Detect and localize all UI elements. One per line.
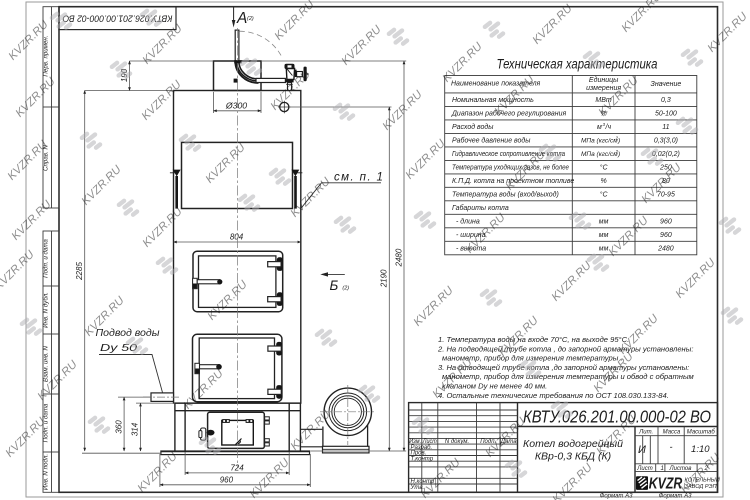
svg-text:Единицы: Единицы: [589, 76, 619, 84]
svg-text:клапаном Dу не менее 40 мм.: клапаном Dу не менее 40 мм.: [442, 382, 547, 391]
svg-text:960: 960: [220, 475, 234, 484]
svg-text:/ч: /ч: [605, 124, 612, 131]
svg-text:11: 11: [662, 124, 669, 131]
svg-text:(2): (2): [342, 286, 349, 292]
svg-text:804: 804: [230, 233, 244, 242]
svg-text:0,3: 0,3: [661, 97, 671, 104]
svg-text:Лит.: Лит.: [638, 430, 653, 436]
svg-text:KVZR.RU: KVZR.RU: [140, 78, 185, 123]
svg-text:Номинальная мощность: Номинальная мощность: [452, 97, 534, 104]
svg-text:Т.контр: Т.контр: [411, 456, 434, 462]
svg-text:KVZR.RU: KVZR.RU: [136, 450, 181, 495]
svg-text:(2): (2): [247, 16, 254, 22]
svg-text:Взам. инв. N: Взам. инв. N: [43, 345, 50, 382]
svg-text:МПа (кгс/см: МПа (кгс/см: [581, 151, 618, 158]
svg-text:KVZR.RU: KVZR.RU: [141, 22, 186, 67]
svg-text:314: 314: [131, 422, 140, 436]
svg-text:Листов: Листов: [669, 466, 692, 472]
svg-text:МПа (кгс/см: МПа (кгс/см: [581, 138, 618, 145]
svg-text:): ): [617, 151, 620, 158]
svg-text:Расход воды: Расход воды: [452, 123, 494, 131]
svg-text:Масса: Масса: [663, 430, 681, 436]
svg-text:KVZR.RU: KVZR.RU: [620, 0, 665, 35]
svg-text:%: %: [600, 178, 606, 185]
svg-text:N докум.: N докум.: [445, 439, 469, 445]
svg-text:KVZR.RU: KVZR.RU: [607, 214, 652, 259]
svg-text:2480: 2480: [394, 248, 403, 267]
svg-text:KVZR.RU: KVZR.RU: [706, 10, 750, 55]
svg-text:KVZR.RU: KVZR.RU: [0, 248, 37, 293]
svg-text:Лист: Лист: [636, 466, 652, 472]
svg-text:Dу 50: Dу 50: [100, 342, 137, 354]
svg-text:KVZR.RU: KVZR.RU: [551, 461, 596, 500]
svg-text:0,3(3,0): 0,3(3,0): [654, 138, 678, 145]
svg-text:см. п. 1: см. п. 1: [334, 172, 384, 184]
svg-text:Перв. примен.: Перв. примен.: [43, 35, 50, 76]
svg-text:360: 360: [114, 420, 123, 434]
svg-text:KVZR.RU: KVZR.RU: [441, 40, 486, 85]
svg-text:2. На подводящей трубе котл: 2. На подводящей трубе котла , до запорн…: [437, 344, 693, 353]
svg-text:KVZR.RU: KVZR.RU: [204, 141, 249, 186]
svg-text:1. Температура воды на вход: 1. Температура воды на входе 70°С, на вы…: [438, 335, 629, 344]
svg-text:Ø300: Ø300: [225, 101, 247, 111]
svg-text:КВТУ.026.201.00.000-02 ВО: КВТУ.026.201.00.000-02 ВО: [523, 406, 711, 426]
svg-text:KVZR.RU: KVZR.RU: [80, 163, 125, 208]
svg-text:960: 960: [660, 232, 672, 239]
svg-text:KVZR.RU: KVZR.RU: [531, 2, 576, 47]
svg-text:1:10: 1:10: [691, 444, 710, 455]
svg-text:-: -: [670, 442, 673, 452]
svg-text:960: 960: [660, 219, 672, 226]
svg-text:А: А: [236, 10, 247, 27]
svg-text:KVZR.RU: KVZR.RU: [10, 198, 55, 243]
svg-text:KVZR.RU: KVZR.RU: [248, 456, 293, 500]
svg-text:2285: 2285: [75, 262, 84, 281]
svg-text:И: И: [638, 444, 646, 456]
svg-text:KVZR.RU: KVZR.RU: [550, 259, 595, 304]
svg-text:Температура уходящих газов, не: Температура уходящих газов, не более: [452, 164, 569, 172]
svg-text:Рабочее давление воды: Рабочее давление воды: [452, 137, 531, 145]
svg-text:3. На отводящей трубе котла: 3. На отводящей трубе котла ,до запорной…: [438, 363, 689, 372]
svg-text:): ): [617, 138, 620, 145]
svg-text:Б: Б: [330, 278, 339, 293]
svg-text:Формат А3: Формат А3: [600, 494, 633, 500]
svg-text:KVZR.RU: KVZR.RU: [141, 205, 186, 250]
svg-text:Инв. N дубл.: Инв. N дубл.: [43, 292, 50, 328]
svg-text:Подвод воды: Подвод воды: [96, 327, 160, 339]
svg-text:°С: °С: [600, 164, 609, 172]
svg-text:Температура воды (вход/выход): Температура воды (вход/выход): [452, 191, 559, 199]
svg-text:KVZR.RU: KVZR.RU: [674, 256, 719, 301]
svg-text:°С: °С: [600, 191, 609, 199]
svg-text:4. Остальные технические тр: 4. Остальные технические требования по О…: [438, 391, 669, 400]
svg-text:KVZR.RU: KVZR.RU: [404, 137, 449, 182]
svg-text:50-100: 50-100: [655, 111, 677, 118]
svg-text:Диапазон рабочего регулировани: Диапазон рабочего регулирования: [451, 110, 567, 118]
svg-text:м: м: [597, 124, 602, 131]
svg-text:манометр, прибор для измерени: манометр, прибор для измерения температу…: [442, 372, 695, 381]
svg-text:мм: мм: [599, 219, 609, 226]
svg-text:KVZR.RU: KVZR.RU: [381, 88, 426, 133]
svg-text:Масштаб: Масштаб: [687, 430, 716, 436]
svg-text:KVZR: KVZR: [649, 476, 683, 493]
svg-text:Подп. и дата: Подп. и дата: [43, 239, 50, 278]
svg-text:724: 724: [230, 463, 244, 472]
svg-text:1: 1: [661, 466, 664, 472]
svg-text:KVZR.RU: KVZR.RU: [182, 367, 227, 412]
svg-text:- длина: - длина: [456, 218, 480, 226]
svg-text:Техническая характеристика: Техническая характеристика: [497, 56, 658, 71]
svg-text:KVZR.RU: KVZR.RU: [206, 278, 251, 323]
svg-text:Инв. N подл.: Инв. N подл.: [43, 454, 50, 490]
svg-text:Габариты котла: Габариты котла: [452, 204, 509, 212]
svg-text:2480: 2480: [657, 246, 674, 253]
svg-text:Значение: Значение: [651, 81, 682, 88]
svg-text:мм: мм: [599, 232, 609, 239]
svg-text:KVZR.RU: KVZR.RU: [412, 284, 457, 329]
svg-text:2190: 2190: [380, 269, 389, 288]
